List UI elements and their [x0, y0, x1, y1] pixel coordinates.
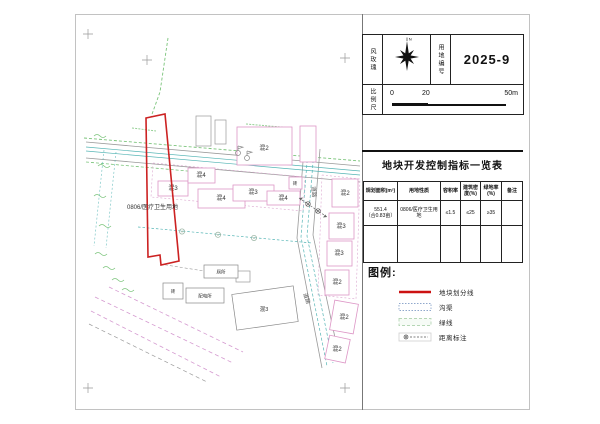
wind-rose-cell: N [383, 35, 431, 85]
legend-item-label: 绿线 [439, 317, 453, 327]
plot-number: 2025-9 [464, 52, 510, 67]
legend-item-parcel-line: 地块划分线 [398, 287, 474, 297]
wind-rose-label-cell: 风玫瑰 [363, 35, 383, 85]
legend-item-label: 地块划分线 [439, 287, 474, 297]
north-label: N [408, 37, 411, 42]
scale-tick-20: 20 [422, 90, 430, 97]
legend-item-ditch: 沟渠 [398, 302, 474, 312]
scale-label: 比例尺 [368, 88, 377, 112]
distance-marker-swatch-icon [398, 332, 432, 342]
cell-land-use: 0806/医疗卫生用地 [398, 201, 441, 226]
building-label: 砖 [171, 288, 176, 295]
indicators-table: 规划面积(m²) 用地性质 容积率 建筑密度(%) 绿地率(%) 备注 551.… [363, 181, 523, 263]
drawing-sheet: 混2 混3 混4 混4 混3 混4 砖 混2 混3 混3 混2 混2 [0, 0, 600, 424]
table-row: 551.4 （合0.83亩） 0806/医疗卫生用地 ≤1.5 ≤25 ≥35 [364, 201, 523, 226]
scale-bar: 0 20 50m [383, 85, 523, 114]
cell-remark [502, 201, 523, 226]
scale-bar-segment [428, 104, 506, 107]
ditch-swatch-icon [398, 302, 432, 312]
section-rule [362, 150, 523, 152]
legend-title: 图例: [368, 264, 397, 280]
ditch-lines [86, 147, 360, 366]
col-header: 建筑密度(%) [461, 182, 481, 201]
col-header: 规划面积(m²) [364, 182, 398, 201]
plot-no-label: 用地编号 [436, 44, 445, 76]
building-label: 混3 [248, 188, 258, 196]
scale-bar-cell: 0 20 50m [383, 85, 524, 115]
road-lines [86, 142, 360, 368]
indicators-table-title: 地块开发控制指标一览表 [362, 157, 523, 172]
legend-item-green-line: 绿线 [398, 317, 474, 327]
plot-no-cell: 2025-9 [451, 35, 524, 85]
cell-area: 551.4 （合0.83亩） [364, 201, 398, 226]
building [196, 116, 211, 146]
building [300, 126, 316, 162]
building-label: 混3 [336, 222, 346, 230]
col-header: 绿地率(%) [481, 182, 502, 201]
building-label: 混4 [278, 194, 288, 202]
scale-tick-50: 50m [504, 90, 518, 97]
building [215, 120, 226, 144]
building-label: 混2 [339, 313, 349, 321]
green-line-swatch-icon [398, 317, 432, 327]
building-label: 混2 [259, 144, 269, 152]
title-block: 风玫瑰 N [362, 34, 524, 115]
cell-far: ≤1.5 [441, 201, 461, 226]
building-label: 混3 [168, 184, 178, 192]
cell-density: ≤25 [461, 201, 481, 226]
legend-item-label: 沟渠 [439, 302, 453, 312]
building-label: 厕所 [217, 269, 226, 276]
wind-rose-label: 风玫瑰 [368, 48, 377, 72]
building-label: 混2 [332, 278, 342, 286]
road-label: 道路 [301, 292, 312, 305]
building-label: 混4 [196, 171, 206, 179]
cell-green-rate: ≥35 [481, 201, 502, 226]
wind-rose-icon: N [385, 35, 429, 79]
survey-cross-marks [83, 29, 350, 393]
scale-label-cell: 比例尺 [363, 85, 383, 115]
col-header: 用地性质 [398, 182, 441, 201]
parcel-label: 0806/医疗卫生用地 [127, 203, 178, 211]
plot-no-label-cell: 用地编号 [431, 35, 451, 85]
scale-tick-0: 0 [390, 90, 394, 97]
scale-bar-segment [392, 103, 428, 106]
building-label: 混3 [334, 249, 344, 257]
legend: 地块划分线 沟渠 绿线 距离标注 [398, 287, 474, 342]
building-label: 砖 [293, 180, 298, 187]
building-label: 混3 [260, 305, 269, 313]
col-header: 容积率 [441, 182, 461, 201]
building-label: 配电所 [198, 293, 212, 300]
col-header: 备注 [502, 182, 523, 201]
legend-item-label: 距离标注 [439, 332, 467, 342]
tree-circle-symbols [179, 229, 256, 241]
legend-item-distance: 距离标注 [398, 332, 474, 342]
building-label: 混4 [216, 194, 226, 202]
parcel-line-swatch-icon [398, 287, 432, 297]
buildings: 混2 混3 混4 混4 混3 混4 砖 混2 混3 混3 混2 混2 [158, 116, 358, 363]
building-label: 混2 [332, 345, 342, 353]
building-label: 混2 [340, 189, 350, 197]
table-row-empty [364, 226, 523, 263]
